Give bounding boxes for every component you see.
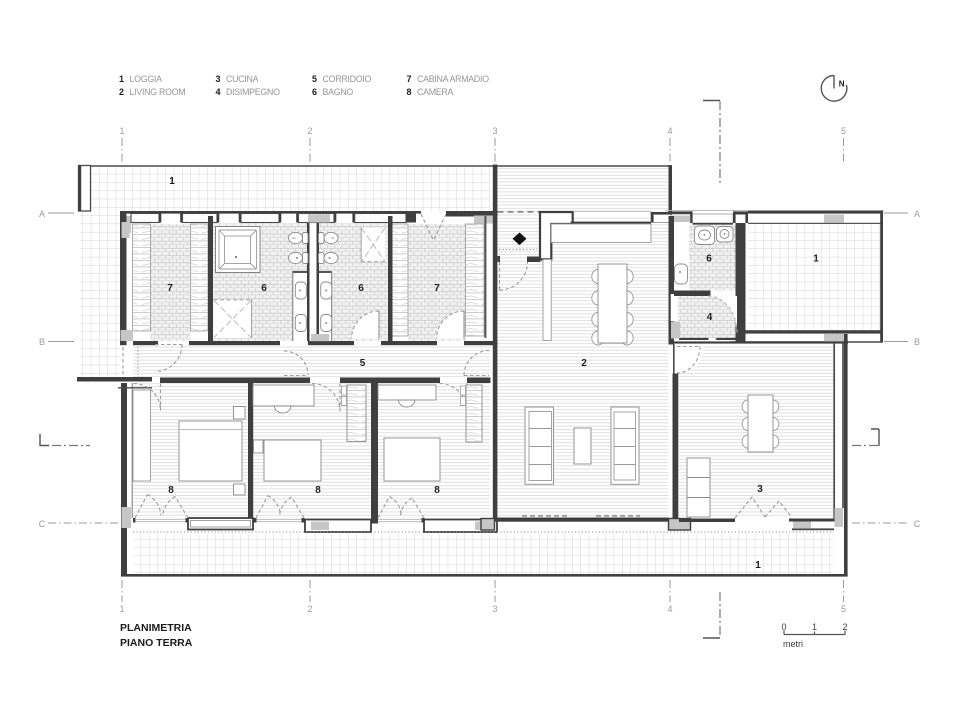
svg-text:6: 6 [261, 283, 267, 294]
svg-text:CORRIDOIO: CORRIDOIO [323, 74, 372, 84]
svg-text:1: 1 [812, 622, 817, 632]
svg-text:CUCINA: CUCINA [226, 74, 259, 84]
svg-text:8: 8 [434, 485, 440, 496]
svg-text:2: 2 [307, 126, 312, 136]
svg-text:A: A [914, 209, 920, 219]
svg-text:3: 3 [492, 604, 497, 614]
svg-text:CAMERA: CAMERA [417, 87, 454, 97]
svg-text:PLANIMETRIA: PLANIMETRIA [120, 622, 192, 634]
svg-text:1: 1 [119, 74, 124, 84]
svg-text:7: 7 [407, 74, 412, 84]
svg-text:DISIMPEGNO: DISIMPEGNO [226, 87, 280, 97]
svg-text:5: 5 [841, 126, 846, 136]
svg-text:5: 5 [360, 358, 366, 369]
svg-text:8: 8 [407, 87, 412, 97]
svg-text:6: 6 [706, 254, 712, 265]
svg-text:C: C [39, 519, 46, 529]
svg-text:8: 8 [168, 485, 174, 496]
svg-text:B: B [39, 337, 45, 347]
svg-text:B: B [914, 337, 920, 347]
svg-text:3: 3 [216, 74, 221, 84]
svg-text:6: 6 [312, 87, 317, 97]
svg-text:7: 7 [167, 283, 173, 294]
svg-text:4: 4 [667, 126, 672, 136]
svg-text:3: 3 [492, 126, 497, 136]
svg-text:4: 4 [216, 87, 221, 97]
svg-text:1: 1 [119, 604, 124, 614]
svg-text:LIVING ROOM: LIVING ROOM [130, 87, 186, 97]
svg-text:2: 2 [581, 358, 587, 369]
svg-text:1: 1 [813, 254, 819, 265]
svg-text:6: 6 [358, 283, 364, 294]
svg-text:2: 2 [307, 604, 312, 614]
svg-text:1: 1 [119, 126, 124, 136]
svg-text:8: 8 [315, 485, 321, 496]
svg-text:C: C [914, 519, 921, 529]
svg-text:LOGGIA: LOGGIA [130, 74, 163, 84]
svg-text:2: 2 [119, 87, 124, 97]
svg-text:1: 1 [755, 560, 761, 571]
svg-text:5: 5 [841, 604, 846, 614]
svg-text:5: 5 [312, 74, 317, 84]
svg-text:BAGNO: BAGNO [323, 87, 354, 97]
svg-text:1: 1 [169, 176, 175, 187]
svg-text:metri: metri [783, 639, 803, 649]
svg-text:N: N [839, 80, 845, 89]
svg-text:3: 3 [757, 484, 763, 495]
svg-text:PIANO TERRA: PIANO TERRA [120, 637, 193, 649]
svg-text:4: 4 [707, 312, 713, 323]
svg-text:4: 4 [667, 604, 672, 614]
svg-text:7: 7 [434, 283, 440, 294]
svg-text:A: A [39, 209, 45, 219]
svg-text:CABINA ARMADIO: CABINA ARMADIO [417, 74, 489, 84]
